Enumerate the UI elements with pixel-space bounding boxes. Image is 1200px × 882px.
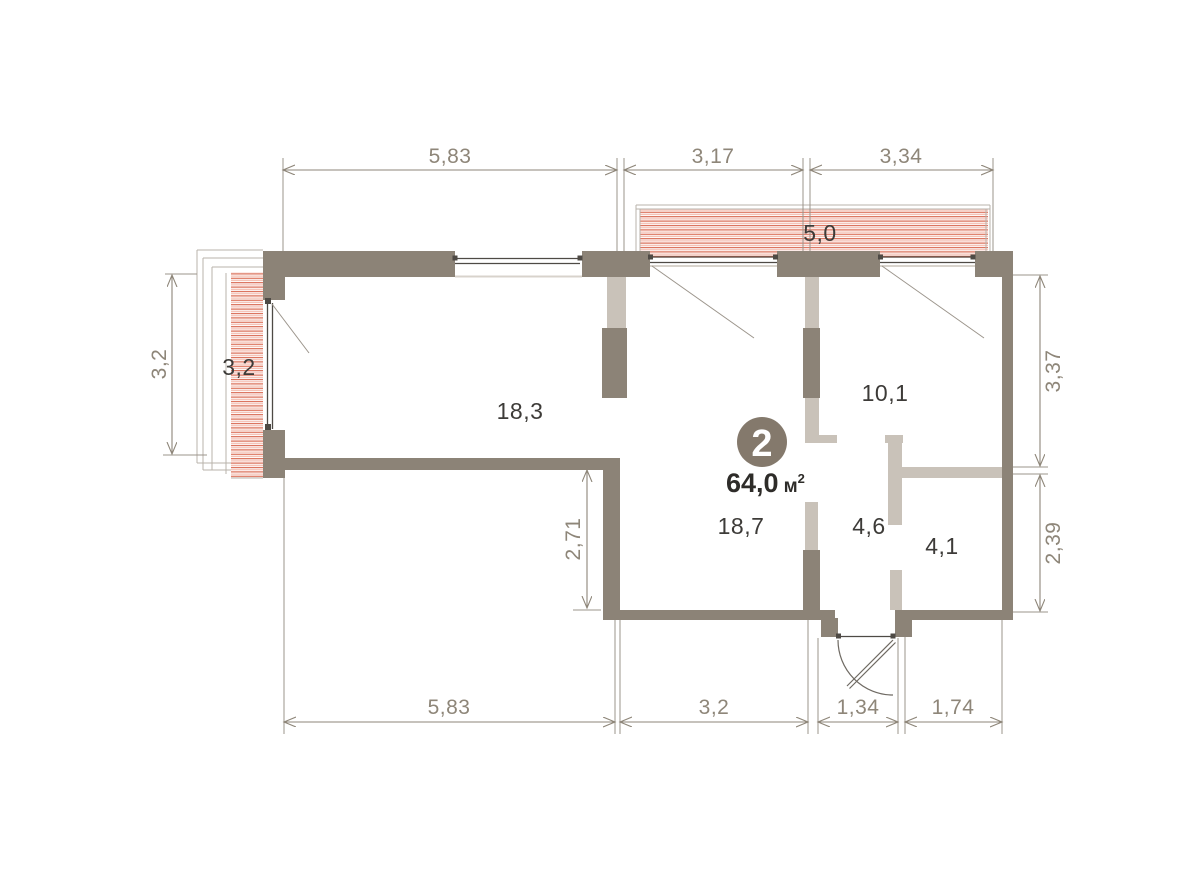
wall-segment (263, 251, 455, 277)
wall-inner-face-line (455, 266, 975, 277)
wall-pier (803, 550, 820, 610)
door-jamb (895, 618, 912, 637)
door-leaf (847, 640, 896, 689)
dim-label-top-1: 5,83 (429, 145, 472, 168)
room-area-10-1: 10,1 (862, 380, 909, 406)
wall-segment (603, 458, 620, 620)
total-area-value: 64,0 (726, 468, 779, 498)
dim-label-left-1: 3,2 (148, 349, 171, 380)
window-end-square (971, 255, 976, 260)
wall-pier (602, 328, 627, 398)
floor-plan-page: 5,83 3,17 3,34 5,83 3,2 1,34 1,74 3,2 3,… (0, 0, 1200, 882)
wall-segment (263, 458, 620, 470)
balcony-door-swing-line (652, 266, 754, 338)
room-area-18-3: 18,3 (497, 398, 544, 424)
window-end-square (265, 424, 271, 430)
window-glass-line (455, 259, 580, 264)
door-jamb (821, 618, 838, 637)
partition (888, 443, 902, 525)
dim-label-top-2: 3,17 (692, 145, 735, 168)
wall-segment (263, 251, 285, 300)
total-area-unit: м (784, 476, 798, 497)
wall-segment (1002, 251, 1013, 620)
balcony-door-swing-line (882, 266, 984, 338)
room-area-3-2: 3,2 (222, 354, 255, 380)
window-end-square (453, 256, 458, 261)
window-end-square (891, 634, 896, 639)
window-glass-line (268, 303, 273, 429)
total-area-sup: 2 (798, 471, 805, 486)
room-area-4-1: 4,1 (925, 533, 958, 559)
wall-segment (777, 251, 880, 277)
wall-pier (803, 328, 820, 398)
dim-label-bottom-2: 3,2 (699, 696, 730, 719)
partition (890, 570, 902, 610)
dim-label-interior-1: 2,71 (562, 518, 585, 561)
room-area-5-0: 5,0 (803, 220, 836, 246)
window-end-square (578, 256, 583, 261)
partition (902, 467, 1002, 478)
apartment-badge: 2 64,0м2 (726, 417, 805, 498)
dim-label-right-2: 2,39 (1042, 522, 1065, 565)
window-end-square (265, 298, 271, 304)
wall-segment (603, 610, 835, 620)
partition (885, 435, 903, 443)
room-area-4-6: 4,6 (852, 513, 885, 539)
dim-label-bottom-3: 1,34 (837, 696, 880, 719)
wall-segment (895, 610, 1013, 620)
dim-label-right-1: 3,37 (1042, 350, 1065, 393)
apartment-number: 2 (751, 423, 772, 465)
dim-label-top-3: 3,34 (880, 145, 923, 168)
partition (805, 502, 818, 550)
wall-segment (263, 430, 285, 478)
interior-partitions (455, 266, 1002, 610)
balcony-door-swing-line (272, 304, 309, 353)
window-end-square (773, 255, 778, 260)
window-end-square (648, 255, 653, 260)
partition (805, 277, 819, 328)
floor-plan: 5,83 3,17 3,34 5,83 3,2 1,34 1,74 3,2 3,… (0, 0, 1200, 882)
window-end-square (878, 255, 883, 260)
partition (805, 435, 837, 443)
partition (607, 277, 626, 328)
total-area-label: 64,0м2 (726, 468, 805, 498)
dim-label-bottom-4: 1,74 (932, 696, 975, 719)
window-end-square (836, 634, 841, 639)
dim-label-bottom-1: 5,83 (428, 696, 471, 719)
wall-segment (582, 251, 650, 277)
entrance-door (838, 640, 896, 695)
room-area-18-7: 18,7 (718, 513, 765, 539)
